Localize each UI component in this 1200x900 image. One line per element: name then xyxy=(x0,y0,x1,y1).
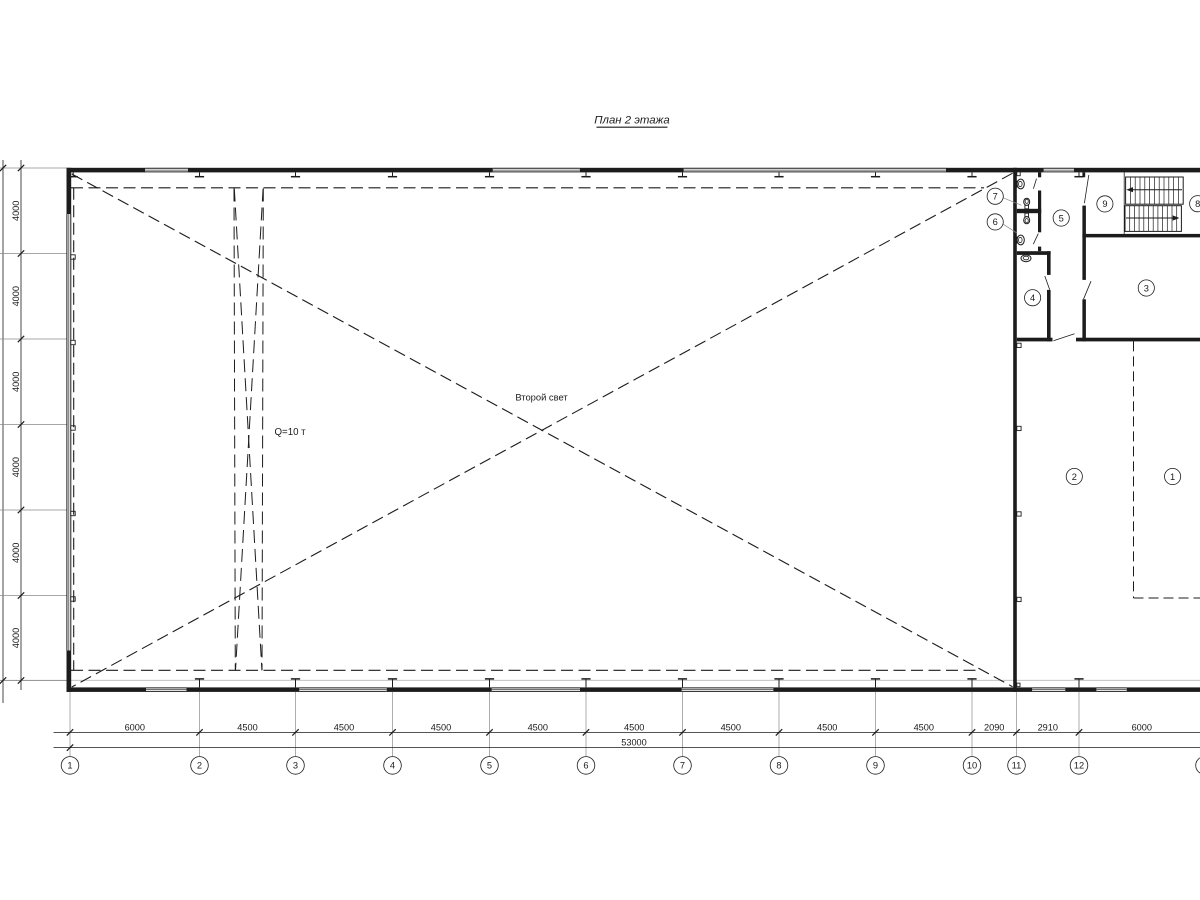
svg-text:4000: 4000 xyxy=(11,372,21,392)
svg-text:4500: 4500 xyxy=(528,722,548,732)
svg-text:4500: 4500 xyxy=(431,722,451,732)
svg-text:6: 6 xyxy=(993,217,998,227)
svg-text:7: 7 xyxy=(680,761,685,771)
svg-text:4500: 4500 xyxy=(914,722,934,732)
svg-text:1: 1 xyxy=(1170,472,1175,482)
svg-text:4500: 4500 xyxy=(817,722,837,732)
svg-text:8: 8 xyxy=(1195,199,1200,209)
svg-text:6: 6 xyxy=(583,761,588,771)
svg-text:2910: 2910 xyxy=(1038,722,1058,732)
svg-text:3: 3 xyxy=(1144,283,1149,293)
svg-text:3: 3 xyxy=(293,761,298,771)
svg-text:53000: 53000 xyxy=(621,737,647,747)
svg-text:6000: 6000 xyxy=(1132,722,1152,732)
svg-text:4000: 4000 xyxy=(11,457,21,477)
svg-text:4500: 4500 xyxy=(334,722,354,732)
svg-text:2090: 2090 xyxy=(984,722,1004,732)
svg-text:7: 7 xyxy=(993,192,998,202)
svg-text:8: 8 xyxy=(776,761,781,771)
svg-text:4500: 4500 xyxy=(237,722,257,732)
svg-text:Второй свет: Второй свет xyxy=(515,392,568,403)
svg-text:9: 9 xyxy=(1102,199,1107,209)
svg-text:4500: 4500 xyxy=(721,722,741,732)
svg-text:План 2 этажа: План 2 этажа xyxy=(594,115,669,127)
svg-text:12: 12 xyxy=(1074,761,1084,771)
svg-text:10: 10 xyxy=(967,761,977,771)
svg-text:5: 5 xyxy=(1059,213,1064,223)
svg-text:9: 9 xyxy=(873,761,878,771)
svg-text:4000: 4000 xyxy=(11,201,21,221)
svg-text:11: 11 xyxy=(1012,761,1022,771)
svg-text:4000: 4000 xyxy=(11,543,21,563)
svg-text:4000: 4000 xyxy=(11,628,21,648)
svg-text:4500: 4500 xyxy=(624,722,644,732)
svg-text:2: 2 xyxy=(1072,472,1077,482)
svg-text:1: 1 xyxy=(67,761,72,771)
svg-text:4000: 4000 xyxy=(11,286,21,306)
svg-text:Q=10 т: Q=10 т xyxy=(275,427,307,438)
svg-text:4: 4 xyxy=(390,761,395,771)
svg-text:4: 4 xyxy=(1030,293,1035,303)
svg-text:5: 5 xyxy=(487,761,492,771)
svg-text:2: 2 xyxy=(197,761,202,771)
svg-text:6000: 6000 xyxy=(125,722,145,732)
